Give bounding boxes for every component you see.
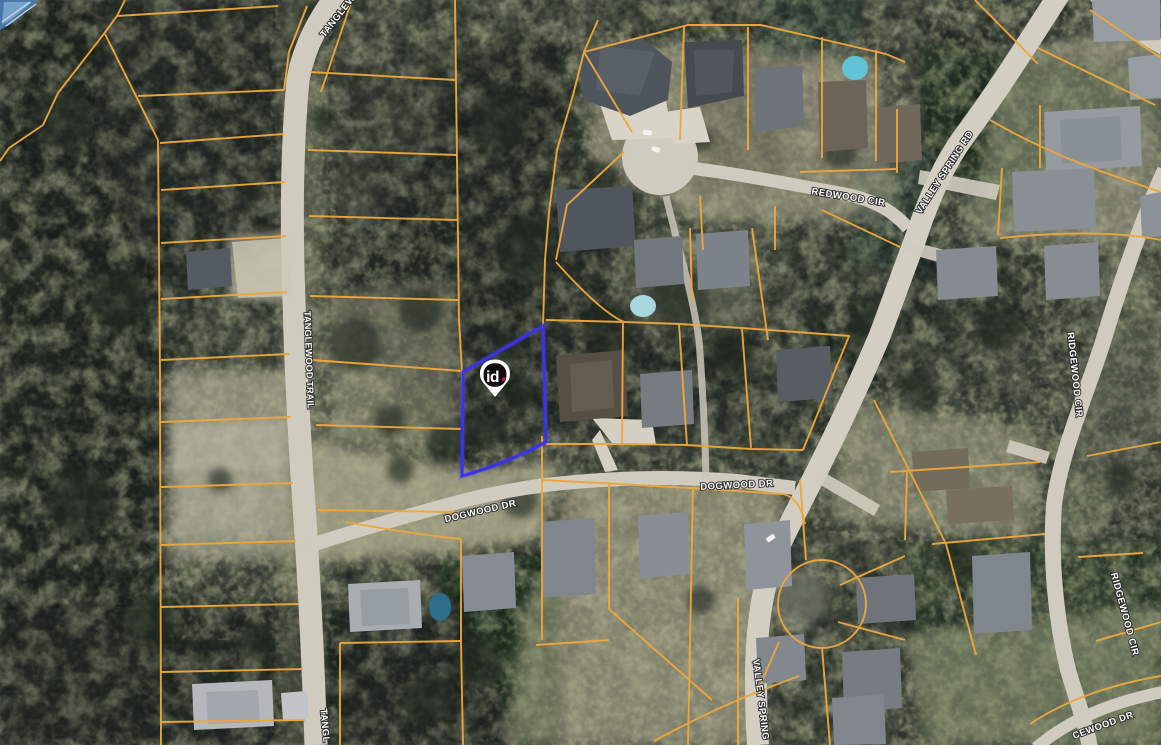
- svg-text:id: id: [486, 369, 499, 386]
